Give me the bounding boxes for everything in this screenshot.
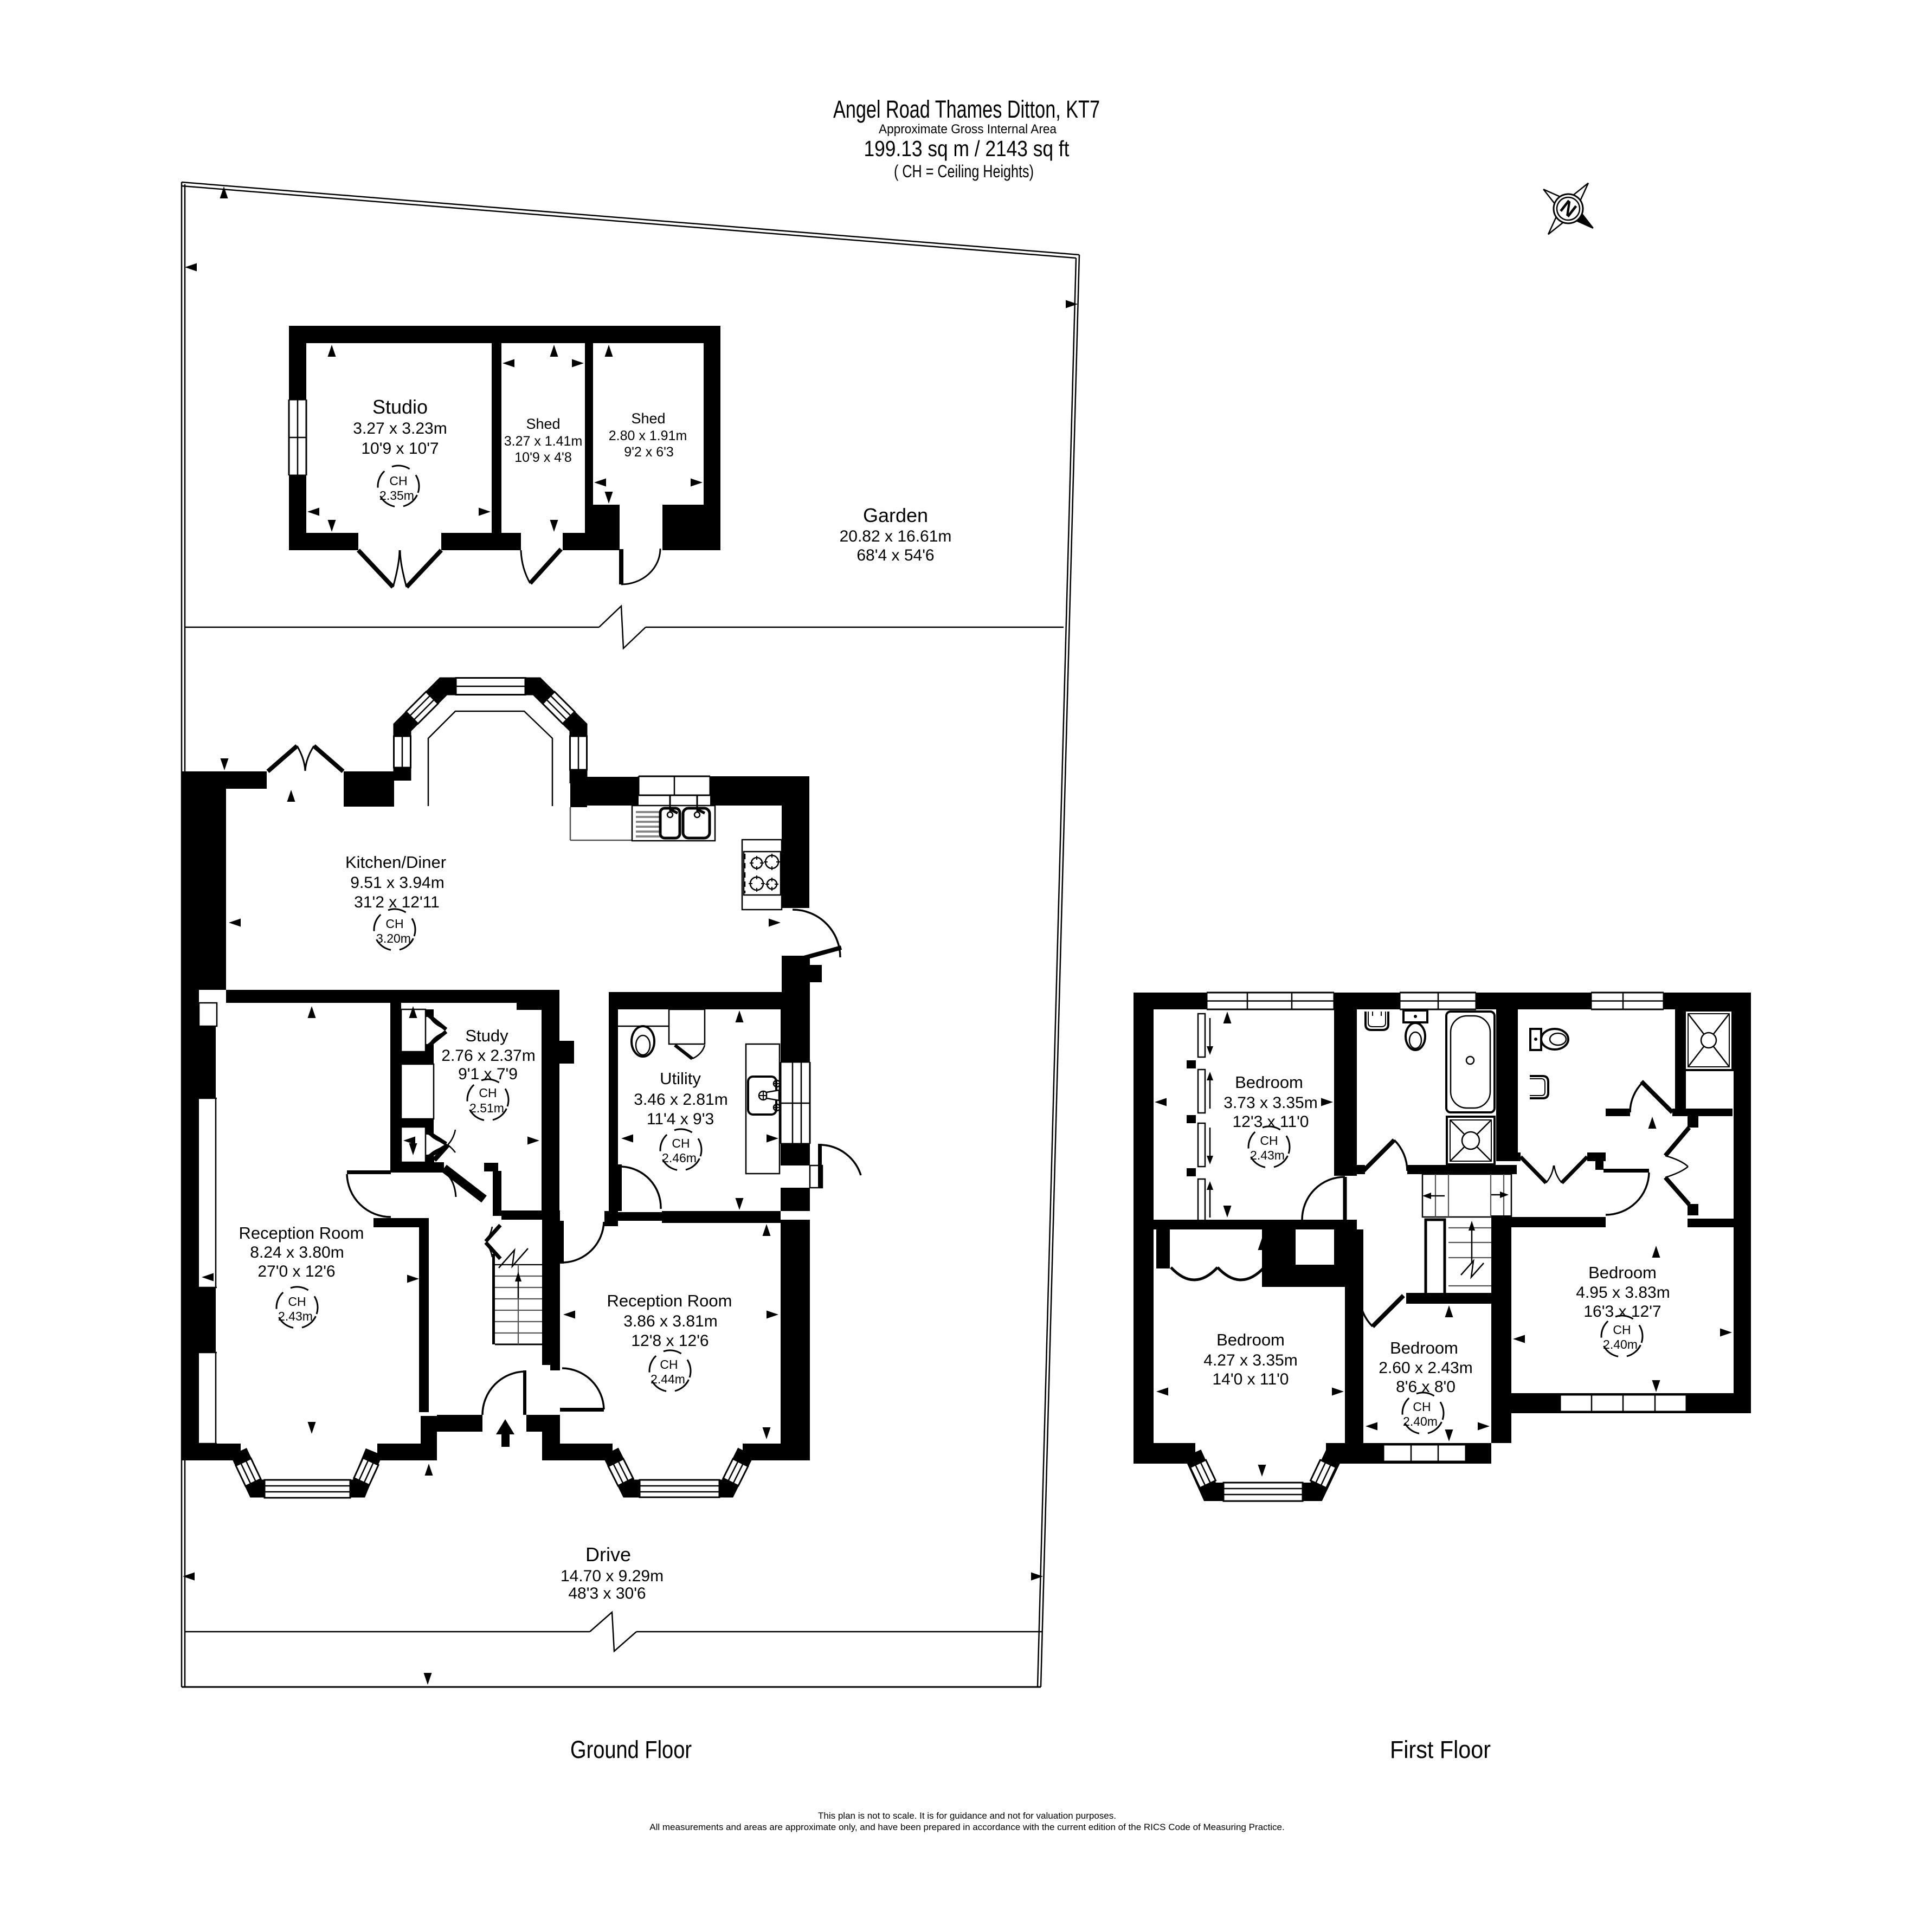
svg-text:Bedroom: Bedroom [1216, 1330, 1285, 1349]
svg-text:2.40m: 2.40m [1403, 1414, 1438, 1428]
svg-text:2.76 x 2.37m: 2.76 x 2.37m [441, 1047, 535, 1065]
svg-text:Study: Study [465, 1026, 508, 1045]
svg-text:9.51 x 3.94m: 9.51 x 3.94m [350, 874, 444, 892]
svg-text:16'3 x 12'7: 16'3 x 12'7 [1583, 1303, 1661, 1321]
svg-text:Bedroom: Bedroom [1235, 1073, 1303, 1092]
svg-text:3.27 x 1.41m: 3.27 x 1.41m [504, 434, 583, 449]
svg-text:Bedroom: Bedroom [1390, 1338, 1458, 1357]
svg-text:14'0 x 11'0: 14'0 x 11'0 [1212, 1370, 1289, 1388]
svg-text:68'4 x 54'6: 68'4 x 54'6 [856, 546, 934, 564]
svg-text:Bedroom: Bedroom [1588, 1263, 1657, 1282]
svg-text:All measurements and areas are: All measurements and areas are approxima… [649, 1822, 1284, 1832]
svg-text:Utility: Utility [660, 1069, 701, 1088]
svg-text:2.44m: 2.44m [651, 1372, 685, 1386]
svg-text:Shed: Shed [631, 410, 665, 427]
svg-text:CH: CH [1260, 1134, 1278, 1148]
svg-text:2.40m: 2.40m [1603, 1337, 1638, 1351]
svg-text:2.46m: 2.46m [662, 1151, 697, 1165]
svg-text:4.95 x 3.83m: 4.95 x 3.83m [1576, 1284, 1670, 1302]
svg-text:9'2 x 6'3: 9'2 x 6'3 [624, 445, 674, 460]
svg-text:First Floor: First Floor [1390, 1736, 1491, 1763]
svg-text:2.43m: 2.43m [278, 1309, 313, 1323]
svg-text:20.82 x 16.61m: 20.82 x 16.61m [840, 527, 952, 545]
svg-text:CH: CH [660, 1357, 678, 1371]
svg-text:CH: CH [479, 1086, 497, 1100]
svg-text:( CH = Ceiling Heights): ( CH = Ceiling Heights) [894, 162, 1034, 181]
svg-text:3.20m: 3.20m [376, 931, 411, 945]
svg-text:Shed: Shed [526, 416, 560, 432]
svg-text:Approximate Gross Internal Are: Approximate Gross Internal Area [879, 122, 1057, 137]
svg-text:Studio: Studio [372, 396, 428, 418]
svg-text:Garden: Garden [863, 504, 928, 526]
svg-text:3.27 x 3.23m: 3.27 x 3.23m [353, 420, 447, 437]
svg-text:27'0 x 12'6: 27'0 x 12'6 [257, 1263, 335, 1280]
svg-text:2.80 x 1.91m: 2.80 x 1.91m [609, 428, 687, 443]
svg-text:2.60 x 2.43m: 2.60 x 2.43m [1379, 1359, 1472, 1377]
svg-text:3.46 x 2.81m: 3.46 x 2.81m [634, 1091, 727, 1109]
svg-text:3.73 x 3.35m: 3.73 x 3.35m [1223, 1094, 1317, 1112]
svg-text:2.35m: 2.35m [379, 488, 414, 503]
svg-text:CH: CH [1413, 1400, 1431, 1414]
svg-text:CH: CH [288, 1295, 306, 1309]
svg-text:3.86 x 3.81m: 3.86 x 3.81m [623, 1312, 717, 1330]
svg-text:CH: CH [672, 1136, 690, 1150]
svg-text:2.51m: 2.51m [469, 1101, 504, 1115]
svg-text:CH: CH [389, 474, 407, 488]
svg-text:Ground Floor: Ground Floor [570, 1736, 692, 1763]
svg-text:This plan is not to scale. It: This plan is not to scale. It is for gui… [818, 1811, 1116, 1821]
svg-text:10'9 x 10'7: 10'9 x 10'7 [361, 440, 439, 458]
svg-text:11'4 x 9'3: 11'4 x 9'3 [647, 1110, 714, 1128]
svg-text:199.13 sq m / 2143 sq ft: 199.13 sq m / 2143 sq ft [864, 136, 1070, 161]
svg-text:9'1 x 7'9: 9'1 x 7'9 [458, 1065, 518, 1083]
svg-text:12'3 x 11'0: 12'3 x 11'0 [1232, 1113, 1309, 1131]
svg-text:10'9 x 4'8: 10'9 x 4'8 [514, 450, 571, 465]
svg-text:Angel Road Thames Ditton, KT7: Angel Road Thames Ditton, KT7 [833, 95, 1100, 123]
svg-text:Kitchen/Diner: Kitchen/Diner [345, 853, 446, 872]
svg-text:4.27 x 3.35m: 4.27 x 3.35m [1203, 1351, 1297, 1369]
svg-text:CH: CH [385, 917, 403, 931]
svg-text:14.70 x 9.29m: 14.70 x 9.29m [561, 1567, 664, 1585]
svg-text:Drive: Drive [585, 1543, 631, 1566]
svg-text:12'8 x 12'6: 12'8 x 12'6 [631, 1332, 709, 1350]
svg-text:8.24 x 3.80m: 8.24 x 3.80m [250, 1244, 344, 1261]
svg-text:2.43m: 2.43m [1250, 1148, 1285, 1162]
svg-text:48'3 x 30'6: 48'3 x 30'6 [568, 1585, 646, 1602]
svg-text:Reception Room: Reception Room [239, 1223, 364, 1242]
svg-text:CH: CH [1613, 1323, 1631, 1337]
svg-text:Reception Room: Reception Room [607, 1291, 732, 1310]
